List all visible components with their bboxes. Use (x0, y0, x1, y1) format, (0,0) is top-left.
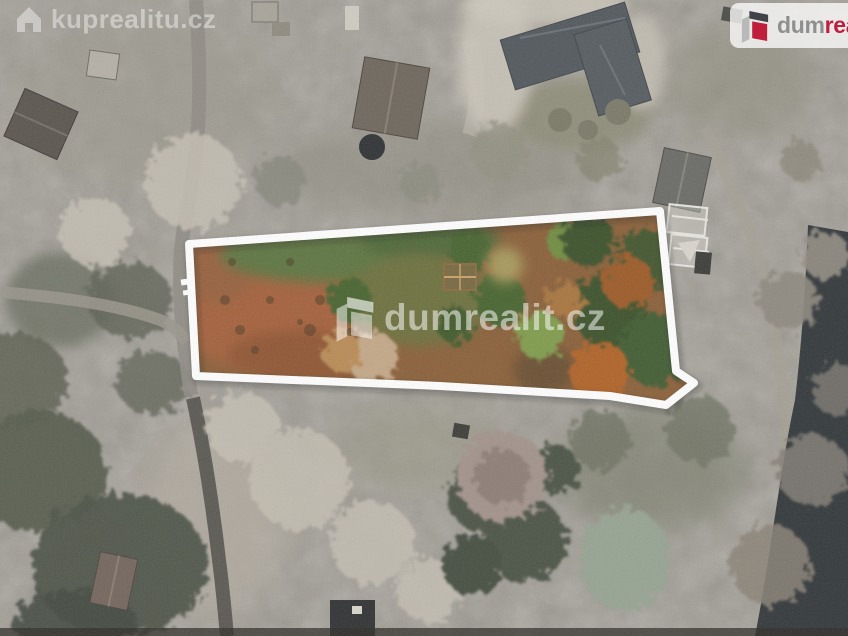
photo-grain-texture (0, 0, 848, 636)
dumrealit-logo: dumreal (730, 3, 848, 48)
logo-text-gray: dum (777, 12, 825, 38)
logo-text: dumreal (777, 12, 848, 39)
building-icon (740, 9, 770, 43)
aerial-photo (0, 0, 848, 636)
logo-text-red: real (825, 12, 848, 38)
aerial-photo-view: kuprealitu.cz dumrealit.cz dumreal (0, 0, 848, 636)
